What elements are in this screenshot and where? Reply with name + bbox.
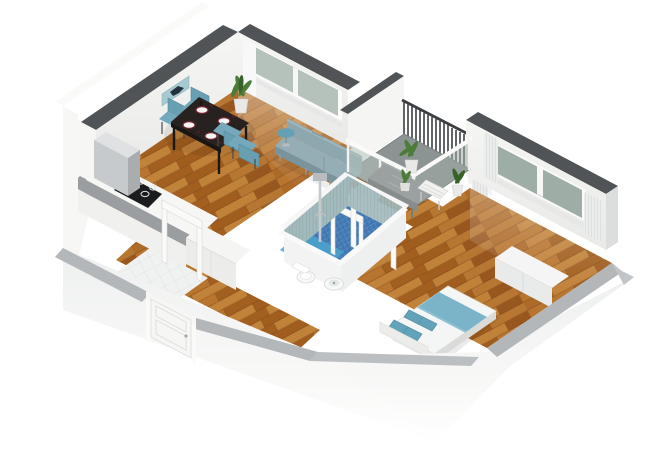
door-knob bbox=[184, 334, 187, 337]
bedroom-window-divider bbox=[537, 166, 543, 197]
bedroom-curtain-left bbox=[484, 132, 498, 184]
west-outer-strip bbox=[63, 106, 78, 252]
shower-head bbox=[313, 173, 327, 181]
wall-bedroom-right-edge bbox=[606, 186, 618, 250]
floor-plan-scene bbox=[0, 0, 650, 450]
fridge-side bbox=[128, 150, 140, 196]
side-table-top bbox=[278, 128, 295, 138]
plant-pot bbox=[234, 99, 248, 113]
floor-plan-svg bbox=[0, 0, 650, 450]
bidet bbox=[325, 278, 344, 290]
living-window-divider bbox=[293, 67, 298, 96]
